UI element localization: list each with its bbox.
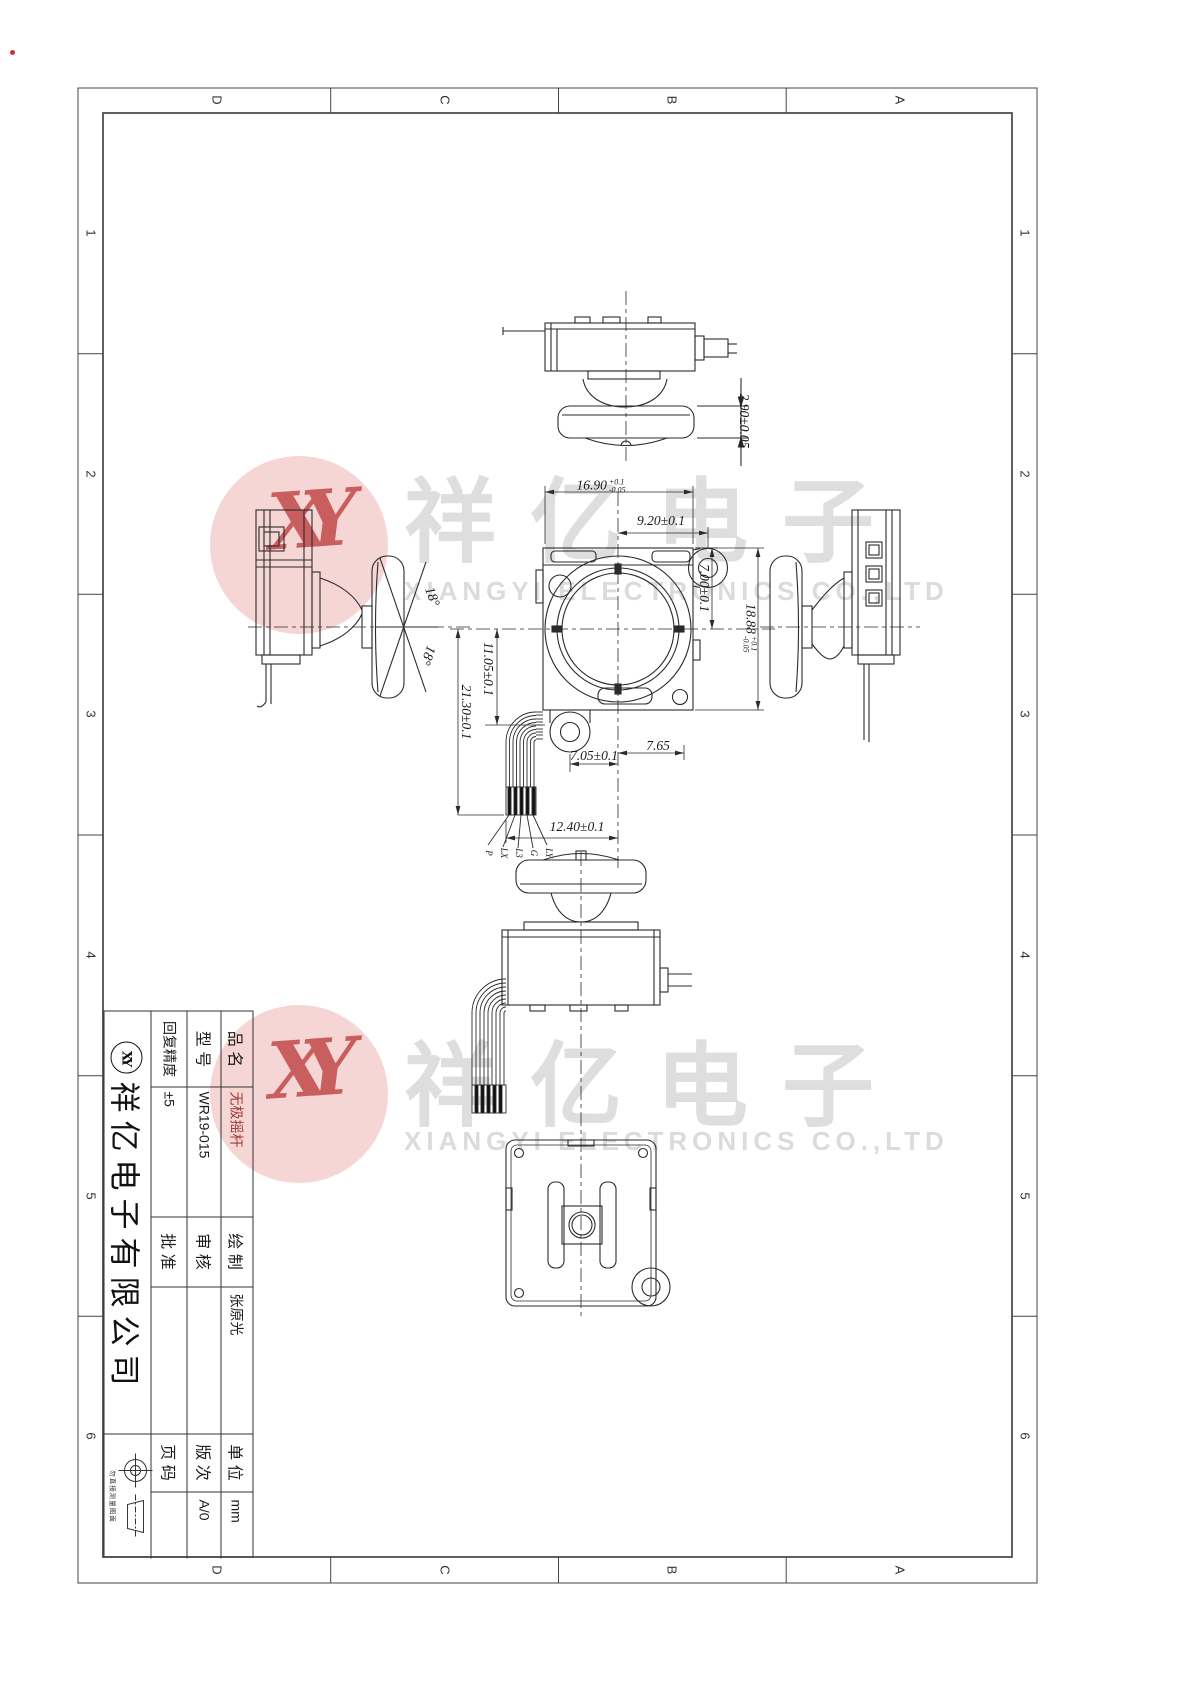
zone-col-d-top: D bbox=[209, 95, 224, 104]
title-rev-label: 版 次 bbox=[187, 1433, 221, 1491]
dimension-7-65: 7.65 bbox=[646, 738, 670, 754]
title-checked-label: 审 核 bbox=[187, 1216, 221, 1286]
view-left-side bbox=[248, 510, 470, 707]
zone-row-1-right: 1 bbox=[1017, 229, 1032, 236]
zone-row-2-left: 2 bbox=[83, 470, 98, 477]
zone-col-b-bottom: B bbox=[665, 1566, 680, 1575]
drawing-sheet: XY 祥亿电子 XIANGYI ELECTRONICS CO.,LTD XY 祥… bbox=[0, 0, 1200, 1697]
title-unit-value: mm bbox=[221, 1499, 252, 1522]
title-drawn-value: 张原光 bbox=[221, 1293, 252, 1335]
title-block: 品 名 无极摇杆 绘 制 张原光 单 位 mm 型 号 WR19-015 审 核… bbox=[103, 1010, 253, 1557]
title-model-value: WR19-015 bbox=[187, 1091, 221, 1158]
zone-col-c-bottom: C bbox=[437, 1565, 452, 1574]
fpc-ribbon-bottom bbox=[472, 979, 506, 1113]
view-right-side bbox=[760, 510, 920, 742]
company-logo: XY bbox=[110, 1041, 142, 1073]
company-name: 祥亿电子有限公司 bbox=[102, 1081, 151, 1393]
dimension-18-88: 18.88+0.1-0.05 bbox=[742, 603, 759, 652]
zone-row-4-right: 4 bbox=[1017, 951, 1032, 958]
zone-row-2-right: 2 bbox=[1017, 470, 1032, 477]
dimension-7-00: 7.00±0.1 bbox=[696, 564, 712, 612]
zone-col-a-top: A bbox=[893, 96, 908, 105]
dimension-2-90: 2.90±0.05 bbox=[736, 394, 752, 449]
zone-col-d-bottom: D bbox=[209, 1565, 224, 1574]
wire-label-l3: L3 bbox=[514, 848, 524, 858]
dimension-9-20: 9.20±0.1 bbox=[637, 513, 685, 529]
zone-row-5-left: 5 bbox=[83, 1192, 98, 1199]
view-front-main bbox=[450, 492, 775, 868]
dimension-12-40: 12.40±0.1 bbox=[550, 819, 605, 835]
title-precision-label: 回复精度 bbox=[151, 1011, 187, 1086]
title-product-value: 无极摇杆 bbox=[221, 1091, 252, 1147]
zone-row-5-right: 5 bbox=[1017, 1192, 1032, 1199]
title-unit-label: 单 位 bbox=[221, 1433, 252, 1491]
wire-label-g: G bbox=[529, 850, 539, 857]
fpc-ribbon-main bbox=[488, 712, 547, 848]
dimension-7-05: 7.05±0.1 bbox=[570, 748, 618, 764]
wire-label-lx: LX bbox=[499, 848, 509, 859]
title-approved-label: 批 准 bbox=[151, 1216, 187, 1286]
zone-row-4-left: 4 bbox=[83, 951, 98, 958]
zone-row-6-left: 6 bbox=[83, 1432, 98, 1439]
wire-label-ly: LY bbox=[544, 848, 554, 858]
zone-row-1-left: 1 bbox=[83, 229, 98, 236]
dimension-16-90: 16.90+0.1-0.05 bbox=[576, 478, 625, 495]
zone-col-c-top: C bbox=[437, 95, 452, 104]
title-page-label: 页 码 bbox=[151, 1433, 187, 1491]
view-top-side bbox=[503, 291, 748, 466]
title-model-label: 型 号 bbox=[187, 1011, 221, 1086]
view-bottom-side bbox=[502, 851, 692, 1011]
zone-row-3-left: 3 bbox=[83, 710, 98, 717]
title-rev-value: A/0 bbox=[187, 1499, 221, 1520]
title-product-label: 品 名 bbox=[221, 1011, 252, 1086]
dimension-11-05: 11.05±0.1 bbox=[480, 642, 496, 696]
dimension-21-30: 21.30±0.1 bbox=[458, 685, 474, 740]
zone-row-3-right: 3 bbox=[1017, 710, 1032, 717]
dimension-lines bbox=[458, 486, 764, 843]
zone-col-b-top: B bbox=[665, 96, 680, 105]
zone-row-6-right: 6 bbox=[1017, 1432, 1032, 1439]
title-precision-value: ±5 bbox=[151, 1091, 187, 1106]
title-drawn-label: 绘 制 bbox=[221, 1216, 252, 1286]
wire-label-p: P bbox=[484, 850, 494, 856]
measurement-note: 勿直接测量图面 bbox=[108, 1461, 118, 1531]
red-dot-mark bbox=[10, 50, 15, 55]
zone-col-a-bottom: A bbox=[893, 1566, 908, 1575]
